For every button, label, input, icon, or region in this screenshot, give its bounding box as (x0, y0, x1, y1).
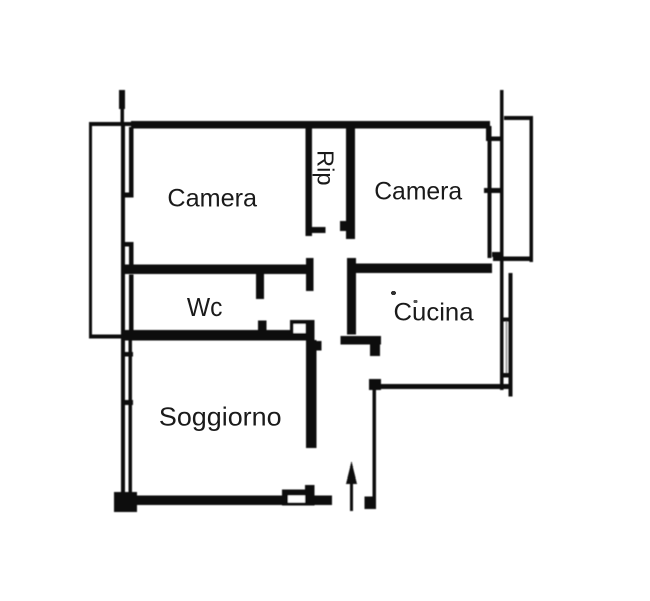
svg-text:Cucina: Cucina (394, 299, 474, 327)
svg-text:Camera: Camera (167, 184, 257, 212)
svg-text:Soggiorno: Soggiorno (159, 402, 282, 432)
svg-text:Rip: Rip (313, 150, 339, 186)
svg-text:Camera: Camera (374, 178, 462, 206)
svg-text:Wc: Wc (187, 294, 223, 322)
